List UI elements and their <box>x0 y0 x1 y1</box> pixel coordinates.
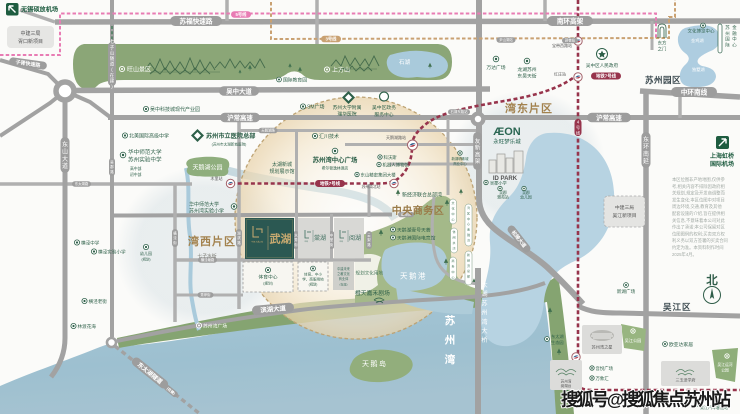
svg-text:商业中心: 商业中心 <box>453 161 467 166</box>
svg-text:吴中科技城现代产业园: 吴中科技城现代产业园 <box>150 106 200 113</box>
svg-text:东太湖路: 东太湖路 <box>75 181 89 186</box>
svg-text:关信息,不意味着本公司对此: 关信息,不意味着本公司对此 <box>672 217 725 224</box>
svg-text:考,相关内容不排除因政府相: 考,相关内容不排除因政府相 <box>672 183 725 190</box>
svg-text:公园: 公园 <box>721 368 729 373</box>
svg-text:总: 总 <box>467 268 470 273</box>
svg-text:子: 子 <box>110 44 115 50</box>
svg-text:之著文化: 之著文化 <box>337 271 351 276</box>
svg-text:吴郡小学: 吴郡小学 <box>490 180 507 187</box>
svg-text:沪常高速: 沪常高速 <box>596 113 622 122</box>
svg-text:新湖明珠城: 新湖明珠城 <box>452 156 470 161</box>
svg-text:瑞华医院: 瑞华医院 <box>337 111 356 118</box>
svg-text:科沃斯: 科沃斯 <box>384 154 398 161</box>
svg-text:中: 中 <box>451 211 454 216</box>
svg-text:天鹅湖壹号天荟: 天鹅湖壹号天荟 <box>397 227 431 234</box>
svg-text:务: 务 <box>451 264 454 269</box>
svg-text:服务中心: 服务中心 <box>374 111 393 118</box>
svg-text:利义务以双方签署的买卖合同: 利义务以双方签署的买卖合同 <box>672 237 728 244</box>
svg-text:阅湖台: 阅湖台 <box>561 383 572 388</box>
svg-text:吴中大道: 吴中大道 <box>226 86 252 95</box>
svg-text:苏州湾中心广场: 苏州湾中心广场 <box>313 155 358 164</box>
svg-text:上方山: 上方山 <box>332 66 350 74</box>
svg-text:湾: 湾 <box>467 237 470 242</box>
svg-text:郭巷站: 郭巷站 <box>565 38 576 43</box>
svg-text:3号线: 3号线 <box>326 36 338 43</box>
svg-text:南环高架: 南环高架 <box>557 16 584 25</box>
svg-text:中建未来: 中建未来 <box>337 266 351 271</box>
svg-text:心: 心 <box>451 275 454 280</box>
svg-text:七: 七 <box>110 38 115 44</box>
svg-text:金鸡湖: 金鸡湖 <box>691 37 704 44</box>
svg-text:棠湖: 棠湖 <box>314 234 326 242</box>
svg-text:学、商服用地: 学、商服用地 <box>302 277 324 282</box>
svg-text:太: 太 <box>481 281 487 289</box>
svg-text:苏州市立医院总部: 苏州市立医院总部 <box>206 132 256 140</box>
svg-text:架: 架 <box>475 158 481 165</box>
svg-text:横泾实验小学: 横泾实验小学 <box>98 249 126 256</box>
svg-text:幼儿园: 幼儿园 <box>140 250 152 256</box>
svg-text:友: 友 <box>475 137 481 145</box>
svg-text:林渡花海: 林渡花海 <box>78 323 97 330</box>
svg-text:湾: 湾 <box>445 353 456 366</box>
svg-text:红庄站: 红庄站 <box>554 71 566 77</box>
svg-text:三玉泽学府: 三玉泽学府 <box>676 377 696 383</box>
svg-text:中环南线: 中环南线 <box>681 87 708 96</box>
svg-text:东太湖: 东太湖 <box>551 333 564 340</box>
svg-text:天鹅湖路: 天鹅湖路 <box>261 128 275 133</box>
svg-text:天鹅港: 天鹅港 <box>400 271 427 281</box>
svg-text:横泾中学: 横泾中学 <box>81 240 100 247</box>
svg-text:融: 融 <box>467 232 470 237</box>
svg-text:国际教育园: 国际教育园 <box>283 77 307 84</box>
svg-text:中央商务区: 中央商务区 <box>392 204 445 217</box>
svg-text:(规划): (规划) <box>309 282 318 287</box>
svg-text:部: 部 <box>467 274 470 279</box>
svg-text:吴中区人民政府: 吴中区人民政府 <box>586 62 619 69</box>
svg-text:5号线: 5号线 <box>236 11 248 18</box>
svg-text:之门: 之门 <box>658 46 667 53</box>
svg-text:天鹅岛: 天鹅岛 <box>362 359 388 368</box>
svg-text:湖: 湖 <box>481 290 487 298</box>
svg-text:水: 水 <box>452 240 455 245</box>
svg-text:吴江区: 吴江区 <box>663 302 692 312</box>
svg-text:心: 心 <box>451 217 454 222</box>
svg-text:苏: 苏 <box>481 299 487 307</box>
svg-text:苏州湾实验小学: 苏州湾实验小学 <box>189 208 224 215</box>
svg-text:橙天嘉禾剧场: 橙天嘉禾剧场 <box>355 289 390 297</box>
svg-text:机器人博物馆: 机器人博物馆 <box>383 162 410 169</box>
svg-text:天鹅港国际电竞馆: 天鹅港国际电竞馆 <box>397 235 436 242</box>
svg-text:新湖广场: 新湖广场 <box>617 288 636 295</box>
svg-text:苏州大学附属: 苏州大学附属 <box>333 104 362 111</box>
svg-text:苏州湾广场: 苏州湾广场 <box>203 323 227 330</box>
svg-text:区: 区 <box>467 211 470 215</box>
svg-text:上海虹桥: 上海虹桥 <box>710 152 735 160</box>
svg-text:吴江运河: 吴江运河 <box>717 362 732 367</box>
svg-text:州: 州 <box>481 310 487 317</box>
svg-text:独墅湖: 独墅湖 <box>692 66 705 73</box>
svg-text:(苏州市太湖新城医院): (苏州市太湖新城医院) <box>212 142 247 147</box>
svg-text:际: 际 <box>725 41 730 48</box>
svg-text:大: 大 <box>481 327 487 335</box>
svg-text:雅苑站: 雅苑站 <box>497 195 509 200</box>
svg-text:苏州湾: 苏州湾 <box>561 379 572 384</box>
svg-text:胥口新项目: 胥口新项目 <box>18 38 43 45</box>
svg-text:天鹅湖路站: 天鹅湖路站 <box>386 134 406 140</box>
svg-text:高中部: 高中部 <box>130 166 142 171</box>
svg-text:位图图例的权利;买卖双方权: 位图图例的权利;买卖双方权 <box>672 230 725 237</box>
svg-text:万象汇: 万象汇 <box>596 375 610 382</box>
svg-text:金: 金 <box>467 227 470 232</box>
svg-text:闲: 闲 <box>452 235 455 240</box>
svg-text:本区位图非产地地图,仅供参: 本区位图非产地地图,仅供参 <box>672 176 725 183</box>
svg-text:周边环境,交通,教育及其他: 周边环境,交通,教育及其他 <box>672 203 722 210</box>
svg-text:规划展示馆: 规划展示馆 <box>269 168 294 175</box>
svg-text:东吴天街: 东吴天街 <box>517 73 536 80</box>
svg-text:太湖新城: 太湖新城 <box>272 161 292 168</box>
svg-text:北美国际高级中学: 北美国际高级中学 <box>129 133 169 140</box>
svg-text:济: 济 <box>467 263 470 268</box>
svg-text:吴江新项目: 吴江新项目 <box>613 212 637 219</box>
svg-text:文化博览中心: 文化博览中心 <box>688 28 715 35</box>
svg-text:地铁7号线: 地铁7号线 <box>596 73 617 80</box>
svg-text:永旺梦乐城: 永旺梦乐城 <box>493 138 521 146</box>
svg-text:石湖: 石湖 <box>399 58 411 66</box>
svg-text:(规划): (规划) <box>141 257 150 262</box>
svg-text:石湖东路站: 石湖东路站 <box>451 109 469 114</box>
svg-text:心: 心 <box>467 221 470 226</box>
svg-text:华中师范大学: 华中师范大学 <box>189 201 219 208</box>
svg-text:武湖: 武湖 <box>270 232 292 246</box>
svg-text:欧亚达家居: 欧亚达家居 <box>669 341 693 348</box>
svg-text:湾东片区: 湾东片区 <box>505 101 553 115</box>
svg-text:化: 化 <box>451 206 454 211</box>
svg-text:国际机场: 国际机场 <box>710 160 734 168</box>
svg-text:体育中心: 体育中心 <box>258 274 277 281</box>
svg-text:州: 州 <box>725 31 729 36</box>
svg-text:新: 新 <box>475 144 481 152</box>
svg-text:在: 在 <box>110 72 115 78</box>
svg-text:湾: 湾 <box>452 246 455 251</box>
svg-text:金: 金 <box>732 24 737 30</box>
svg-text:生态园: 生态园 <box>551 339 564 346</box>
svg-text:湾: 湾 <box>467 205 470 210</box>
svg-text:汇川技术: 汇川技术 <box>319 133 339 140</box>
svg-text:秀岸街: 秀岸街 <box>200 292 211 297</box>
svg-text:尹山湖站: 尹山湖站 <box>499 37 513 42</box>
svg-text:发生变化;本区位图中对项目: 发生变化;本区位图中对项目 <box>672 196 725 203</box>
svg-text:ÆON: ÆON <box>493 126 521 138</box>
svg-text:商: 商 <box>451 258 454 263</box>
svg-text:无锡硕放机场: 无锡硕放机场 <box>20 6 58 14</box>
svg-text:文: 文 <box>451 200 454 205</box>
svg-text:音悦广场: 音悦广场 <box>596 365 614 372</box>
svg-text:苏州实验中学: 苏州实验中学 <box>128 156 162 164</box>
svg-text:旺山景区: 旺山景区 <box>127 66 151 74</box>
svg-text:SM广场: SM广场 <box>307 104 325 111</box>
svg-text:中: 中 <box>451 269 454 274</box>
svg-text:规划文化用地: 规划文化用地 <box>356 270 384 277</box>
svg-text:南: 南 <box>643 150 649 158</box>
svg-text:2025年4月。: 2025年4月。 <box>672 251 697 258</box>
svg-text:东山精密集团大楼: 东山精密集团大楼 <box>361 172 397 179</box>
svg-text:体育、中小: 体育、中小 <box>304 272 322 277</box>
svg-text:经: 经 <box>467 257 470 262</box>
svg-text:(在建): (在建) <box>340 282 348 287</box>
svg-text:桥: 桥 <box>481 336 487 344</box>
svg-text:北: 北 <box>706 273 718 287</box>
svg-text:山: 山 <box>62 148 68 156</box>
svg-text:龙湖苏州: 龙湖苏州 <box>517 66 536 73</box>
svg-text:中建三局: 中建三局 <box>20 30 40 37</box>
svg-text:苏: 苏 <box>445 314 456 327</box>
svg-text:苏州园区: 苏州园区 <box>645 75 681 85</box>
svg-text:心: 心 <box>732 41 737 47</box>
svg-text:苏福快速路: 苏福快速路 <box>180 16 213 25</box>
svg-text:关规划,规定及开发商调整而: 关规划,规定及开发商调整而 <box>672 190 725 197</box>
svg-text:万达广场: 万达广场 <box>486 64 505 71</box>
svg-text:中: 中 <box>467 216 470 221</box>
svg-text:州: 州 <box>444 335 456 347</box>
svg-text:吴江公园: 吴江公园 <box>625 337 642 344</box>
svg-text:搜狐号@搜狐焦点苏州站: 搜狐号@搜狐焦点苏州站 <box>561 390 732 410</box>
svg-text:新经济联合总部湾: 新经济联合总部湾 <box>402 192 442 199</box>
svg-text:商业体: 商业体 <box>339 276 349 281</box>
svg-text:大: 大 <box>62 155 68 163</box>
svg-text:东方: 东方 <box>658 40 667 47</box>
svg-text:环: 环 <box>643 144 649 151</box>
svg-text:吴郡: 吴郡 <box>522 190 530 195</box>
svg-text:东: 东 <box>643 135 649 143</box>
svg-text:延: 延 <box>643 157 649 165</box>
svg-text:中建三局: 中建三局 <box>615 204 634 211</box>
svg-text:休: 休 <box>452 229 455 234</box>
svg-text:高: 高 <box>475 150 481 158</box>
svg-text:(规划): (规划) <box>263 281 273 286</box>
svg-text:东: 东 <box>62 140 68 148</box>
svg-text:华中师范大学: 华中师范大学 <box>128 148 162 156</box>
svg-text:作出了承诺;本公司保留对区: 作出了承诺;本公司保留对区 <box>672 224 725 231</box>
svg-text:配套设施的介绍,旨在提供相: 配套设施的介绍,旨在提供相 <box>672 210 725 217</box>
svg-text:横泾老街: 横泾老街 <box>89 298 108 305</box>
svg-text:湾: 湾 <box>481 318 487 326</box>
svg-text:吴郡: 吴郡 <box>499 190 507 195</box>
svg-text:地铁7号线: 地铁7号线 <box>320 180 341 187</box>
svg-text:希尔顿逸林酒店: 希尔顿逸林酒店 <box>322 166 349 171</box>
svg-text:约定为准。本资料制作时间: 约定为准。本资料制作时间 <box>672 244 724 251</box>
svg-text:吴中区政务: 吴中区政务 <box>372 104 396 111</box>
svg-text:湾西片区: 湾西片区 <box>188 234 236 248</box>
svg-text:道: 道 <box>62 162 68 170</box>
svg-text:七子水街: 七子水街 <box>197 253 216 260</box>
svg-text:沪常高速: 沪常高速 <box>227 113 253 122</box>
svg-text:新: 新 <box>467 252 470 257</box>
svg-text:阅湖: 阅湖 <box>349 234 361 242</box>
svg-text:苏州湾北站: 苏州湾北站 <box>362 184 381 189</box>
svg-text:初中部: 初中部 <box>130 172 142 177</box>
svg-text:幼儿园: 幼儿园 <box>520 195 532 200</box>
svg-text:苏州湾之星: 苏州湾之星 <box>592 344 613 351</box>
svg-text:天鹅湖公园: 天鹅湖公园 <box>192 164 222 172</box>
